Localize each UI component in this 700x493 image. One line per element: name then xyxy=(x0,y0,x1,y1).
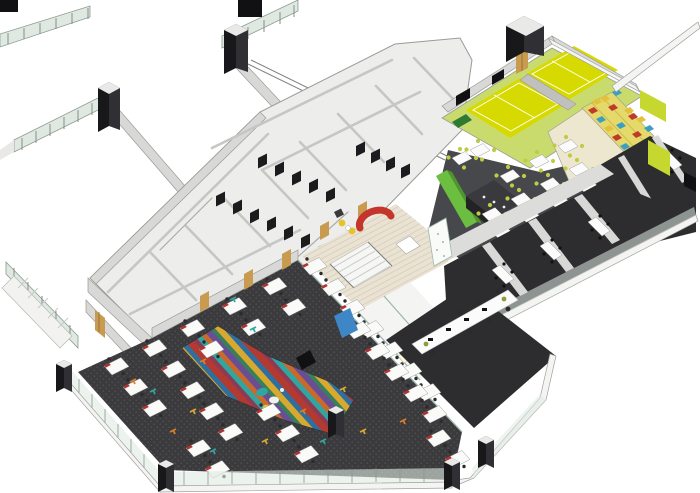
coffee-table xyxy=(346,226,351,231)
side-table xyxy=(280,388,284,392)
laptop xyxy=(446,328,451,331)
counter-sink xyxy=(483,196,486,199)
bridge-b-column xyxy=(224,24,248,74)
lime-feature-wall xyxy=(640,90,666,122)
laptop xyxy=(428,338,433,341)
counter-sink xyxy=(503,206,506,209)
olive-chair xyxy=(502,297,507,302)
corner-column xyxy=(444,458,460,490)
bridge-a-deck xyxy=(0,140,14,160)
interior-column xyxy=(328,406,344,438)
wood-door xyxy=(95,310,105,338)
glass-pattern-dot xyxy=(436,249,438,251)
roof-box xyxy=(238,0,262,17)
beanbag-white xyxy=(269,397,279,404)
counter-sink xyxy=(493,201,496,204)
bridge-a-glass xyxy=(14,92,110,152)
corner-column xyxy=(56,360,72,392)
glass-pattern-dot xyxy=(442,241,444,243)
ne-facade-band xyxy=(612,22,700,92)
stair-flight xyxy=(2,276,72,348)
olive-chair xyxy=(424,342,429,347)
corner-column xyxy=(158,460,174,492)
glass-pattern-dot xyxy=(437,233,439,235)
laptop xyxy=(482,308,487,311)
facade-column xyxy=(478,436,494,468)
floor-plan-svg xyxy=(0,0,700,493)
yellow-lounge-chair xyxy=(339,220,346,227)
bridge-railing-glass xyxy=(0,6,90,47)
roof-box xyxy=(0,0,18,12)
south-facade xyxy=(160,468,452,492)
floor-plan-rendering xyxy=(0,0,700,493)
bridge-a-column xyxy=(98,82,120,132)
glass-pattern-dot xyxy=(443,255,445,257)
laptop xyxy=(464,318,469,321)
